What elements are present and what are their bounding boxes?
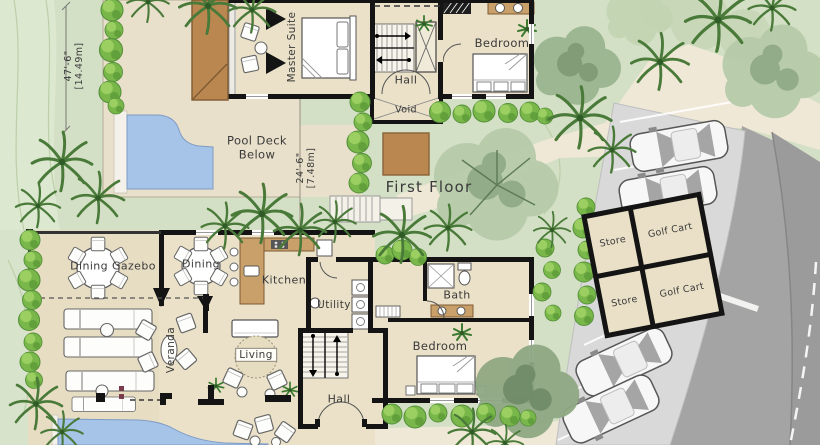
room-store-lower: Store bbox=[599, 270, 651, 332]
room-label-living: Living bbox=[235, 348, 277, 362]
room-label-bedroom-lower: Bedroom bbox=[413, 340, 468, 354]
pool-coping bbox=[114, 111, 127, 193]
room-label-dining: Dining bbox=[182, 259, 220, 272]
room-label: Store bbox=[599, 234, 627, 250]
dimension-imperial: 24'-6" bbox=[295, 148, 306, 189]
dimension-deck-width: 24'-6" [7.48m] bbox=[295, 148, 317, 189]
room-label-hall-upper: Hall bbox=[395, 75, 418, 88]
dimension-imperial: 47'-6" bbox=[63, 42, 74, 89]
bath-vanity bbox=[431, 305, 473, 317]
dimension-site-height: 47'-6" [14.49m] bbox=[63, 42, 85, 89]
roof-canopy bbox=[383, 133, 429, 175]
sink bbox=[244, 266, 259, 276]
label-pool-deck-line2: Below bbox=[227, 148, 287, 162]
wardrobe bbox=[441, 2, 471, 14]
dimension-metric: [14.49m] bbox=[74, 42, 85, 89]
label-pool-deck: Pool Deck Below bbox=[227, 134, 287, 161]
room-golf-cart-upper: Golf Cart bbox=[633, 197, 707, 264]
room-label-dining-gazebo: Dining Gazebo bbox=[70, 261, 156, 274]
room-label-kitchen: Kitchen bbox=[262, 275, 306, 288]
outbuilding: Store Golf Cart Store Golf Cart bbox=[581, 192, 725, 339]
room-label-veranda: Veranda bbox=[165, 327, 177, 373]
room-label: Golf Cart bbox=[659, 281, 705, 300]
site-plan: Store Golf Cart Store Golf Cart Master S… bbox=[0, 0, 820, 445]
sofa bbox=[232, 320, 278, 337]
exterior-stair bbox=[330, 196, 412, 222]
room-store-upper: Store bbox=[587, 211, 639, 273]
vanity bbox=[488, 2, 534, 14]
room-label: Store bbox=[610, 293, 638, 309]
plan-title-first-floor: First Floor bbox=[386, 179, 473, 197]
room-golf-cart-lower: Golf Cart bbox=[645, 257, 719, 324]
side-table bbox=[255, 42, 267, 54]
room-label-utility: Utility bbox=[317, 299, 351, 311]
dimension-metric: [7.48m] bbox=[306, 148, 317, 189]
room-label-hall-lower: Hall bbox=[328, 394, 351, 407]
label-pool-deck-line1: Pool Deck bbox=[227, 134, 287, 148]
lower-stair bbox=[302, 332, 348, 378]
room-label-bath: Bath bbox=[443, 290, 470, 303]
room-label-bedroom-upper: Bedroom bbox=[475, 37, 530, 51]
room-label-master-suite: Master Suite bbox=[286, 12, 298, 83]
toilet bbox=[459, 271, 470, 285]
room-label-void: Void bbox=[395, 104, 417, 115]
room-label: Golf Cart bbox=[647, 221, 693, 240]
